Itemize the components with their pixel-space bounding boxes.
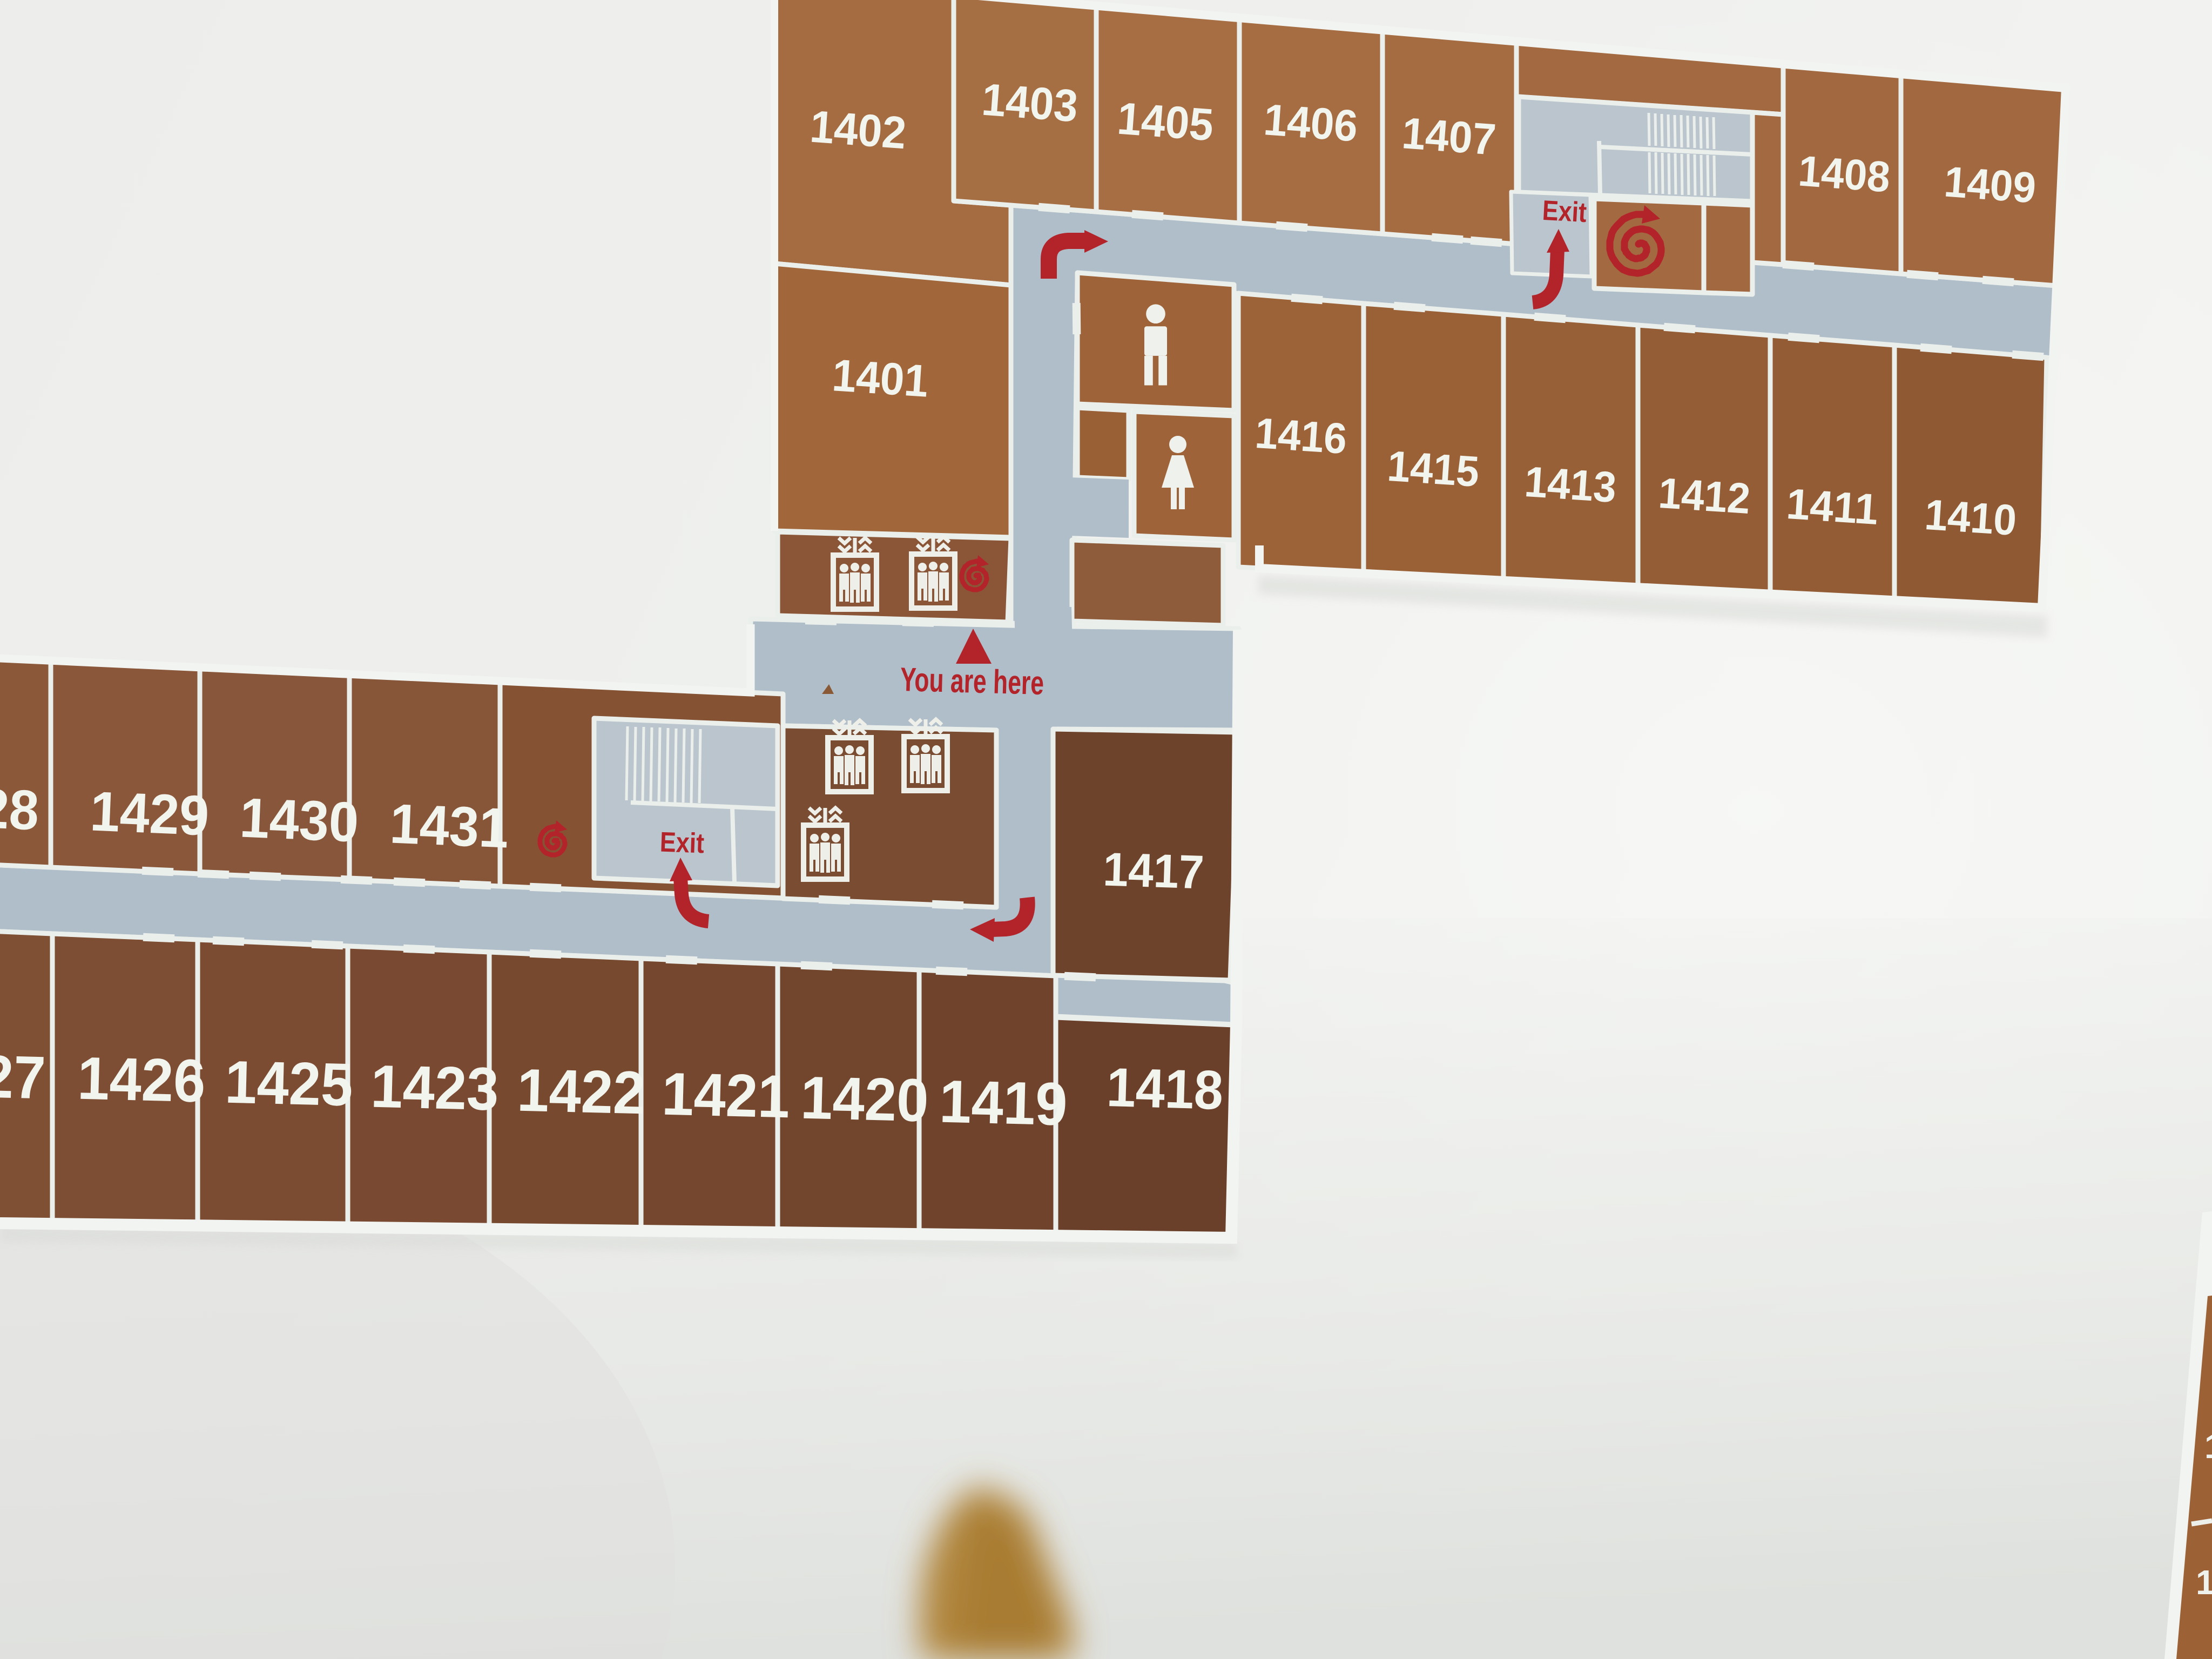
- svg-text:1415: 1415: [1386, 442, 1481, 496]
- svg-text:1422: 1422: [516, 1056, 646, 1127]
- svg-text:1413: 1413: [1523, 457, 1618, 511]
- svg-text:1403: 1403: [980, 74, 1080, 132]
- svg-text:Exit: Exit: [659, 827, 705, 860]
- svg-text:1416: 1416: [1253, 409, 1348, 463]
- svg-text:1: 1: [2204, 1427, 2212, 1466]
- svg-text:1401: 1401: [831, 349, 930, 407]
- svg-text:1427: 1427: [0, 1041, 46, 1112]
- svg-text:1407: 1407: [1400, 109, 1498, 164]
- svg-text:1425: 1425: [224, 1048, 354, 1119]
- svg-text:1402: 1402: [808, 101, 908, 159]
- svg-text:1412: 1412: [1657, 469, 1752, 523]
- svg-text:1409: 1409: [1943, 157, 2038, 212]
- svg-text:1420: 1420: [800, 1064, 929, 1135]
- svg-text:1405: 1405: [1116, 93, 1215, 151]
- svg-text:1408: 1408: [1797, 146, 1892, 201]
- svg-text:1406: 1406: [1262, 95, 1359, 151]
- svg-text:1411: 1411: [1785, 480, 1880, 534]
- svg-text:1417: 1417: [1102, 842, 1205, 899]
- svg-text:1428: 1428: [0, 774, 40, 842]
- svg-text:1431: 1431: [389, 792, 510, 860]
- svg-text:1429: 1429: [89, 780, 211, 847]
- svg-text:You are here: You are here: [900, 661, 1044, 702]
- svg-text:1430: 1430: [239, 786, 360, 854]
- svg-text:1418: 1418: [1105, 1056, 1224, 1121]
- svg-text:1421: 1421: [661, 1060, 791, 1131]
- svg-text:Exit: Exit: [1542, 195, 1588, 228]
- svg-text:1426: 1426: [77, 1044, 206, 1115]
- svg-text:1410: 1410: [1923, 490, 2018, 544]
- svg-text:1419: 1419: [939, 1068, 1068, 1138]
- svg-text:1423: 1423: [370, 1053, 500, 1123]
- svg-text:14: 14: [2196, 1563, 2212, 1602]
